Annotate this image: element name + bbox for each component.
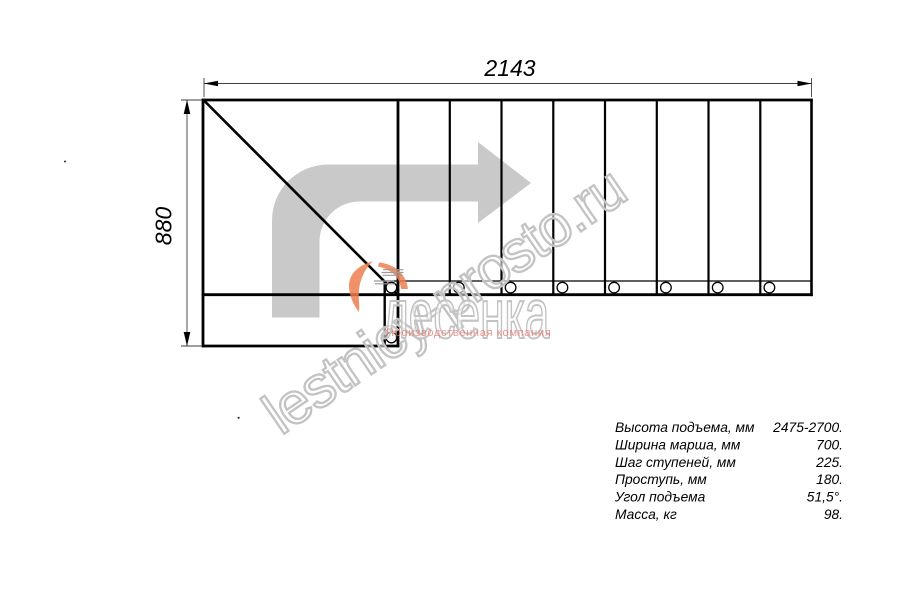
svg-text:2143: 2143: [483, 55, 535, 81]
svg-text:180.: 180.: [816, 472, 843, 487]
svg-text:2475-2700.: 2475-2700.: [772, 420, 843, 435]
svg-text:Шаг ступеней, мм: Шаг ступеней, мм: [615, 455, 736, 470]
svg-text:225.: 225.: [815, 455, 843, 470]
svg-text:98.: 98.: [824, 507, 843, 522]
svg-text:Ширина марша, мм: Ширина марша, мм: [615, 437, 741, 452]
svg-text:Угол подъема: Угол подъема: [614, 490, 706, 505]
svg-text:880: 880: [151, 207, 177, 246]
svg-text:Проступь, мм: Проступь, мм: [615, 472, 707, 487]
svg-text:51,5°.: 51,5°.: [807, 490, 843, 505]
svg-text:Масса, кг: Масса, кг: [615, 507, 677, 522]
svg-text:Производственная компания: Производственная компания: [386, 327, 551, 339]
svg-text:лесенка: лесенка: [383, 276, 550, 353]
svg-text:700.: 700.: [816, 437, 843, 452]
svg-text:Высота подъема, мм: Высота подъема, мм: [615, 420, 755, 435]
